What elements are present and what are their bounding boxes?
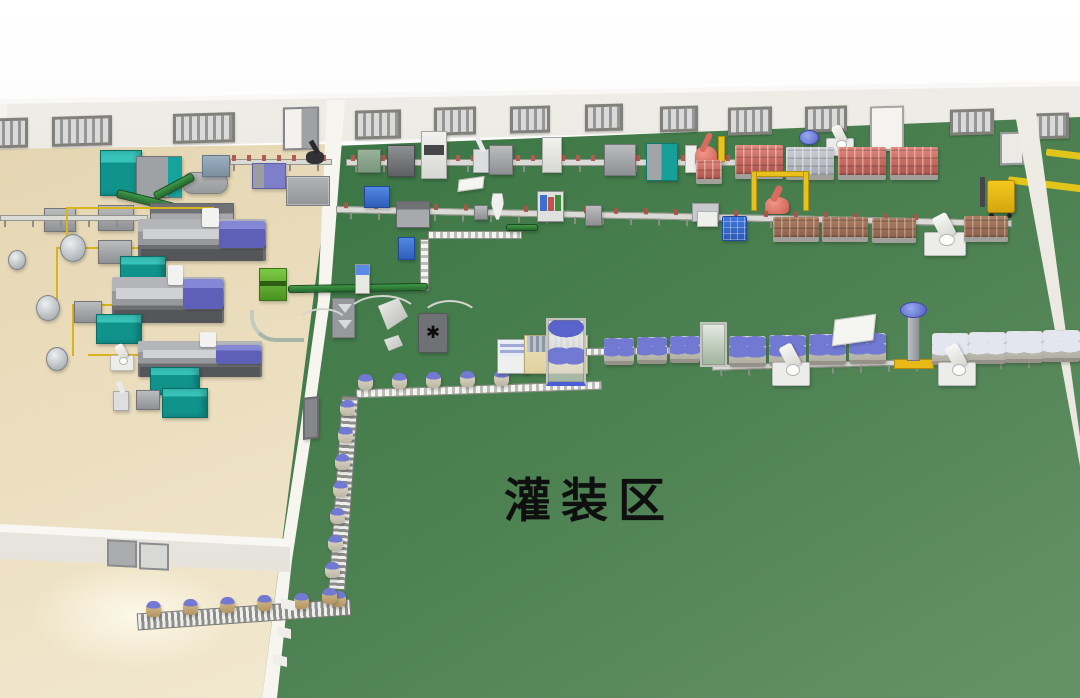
white-machine [697,211,718,227]
drum-pack [1043,330,1080,362]
drum-single [294,593,309,609]
conveyor-belt [0,215,148,221]
drum-pack [637,337,667,364]
drum-single [426,372,441,388]
tube-curve [250,310,304,342]
drum-pack [729,336,766,367]
drum-single [220,597,235,613]
white-robot-arm [938,362,976,386]
drum-single [146,601,161,617]
drum-single [392,373,407,389]
silver-tank [8,250,26,270]
drum-single [340,400,355,416]
column-machine [894,305,934,369]
packer-machine [537,191,564,222]
pipe-yellow [66,207,214,209]
wall-fin [273,654,287,667]
teal-cabinet [162,388,208,418]
blue-tower [355,264,370,294]
drum-single [333,481,348,497]
gray-machine [474,205,488,220]
white-cabinet [421,131,447,179]
yellow-post [718,136,725,162]
gray-machine [585,205,602,226]
drum-pack [604,338,634,365]
blue-machine [364,186,390,208]
imm [138,219,266,261]
pallet-cans [773,217,819,242]
roller-conveyor [137,599,352,631]
pallet-cans [964,216,1008,242]
gray-machine [489,145,513,175]
blue-drum-top [799,130,819,145]
drum-single [338,427,353,443]
silver-robot-sm [113,391,129,411]
white-cabinet [542,137,562,173]
dark-platform [418,313,448,353]
drum-single [183,599,198,615]
filling-area-label: 灌装区 [504,462,675,531]
blue-crates [722,216,747,241]
silver-tank [60,234,86,262]
drum-single [460,371,475,387]
pallet-cans [872,218,916,243]
white-robot-arm [110,355,134,371]
silver-tank [46,347,68,371]
drum-pack [969,332,1006,364]
green-conveyor [506,224,538,231]
white-robot-arm [772,362,810,386]
pipe-yellow [56,247,58,305]
pallet-cans [890,147,938,180]
blue-machine [398,237,415,260]
drum-single [335,454,350,470]
equipment-layer [0,0,1080,698]
teal-cabinet [96,314,142,344]
drum-single [330,508,345,524]
factory-3d-render: 灌装区 [0,0,1080,698]
wire-arc [345,295,420,340]
lime-machine [259,268,287,301]
pallet-cans [822,217,868,242]
drum-single [358,374,373,390]
steel-machine [202,155,230,177]
gray-long-machine [396,201,430,228]
drum-pack [1006,331,1043,363]
drum-single [257,595,272,611]
drum-pack [670,336,700,363]
frame-cabinet [700,322,727,367]
black-robot [302,140,328,164]
gray-machine [136,390,160,410]
wall-fin [277,626,291,639]
purple-machine-sm [252,163,286,189]
frame-cabinet [546,318,586,386]
red-robot [762,186,792,214]
drum-single [325,562,340,578]
gray-door [303,396,319,440]
pallet-cans [696,160,722,184]
gray-dark-machine [387,145,415,177]
white-robot-arm [924,232,966,256]
slat-conveyor [428,231,522,239]
forklift [976,176,1020,218]
green-machine-sm [357,149,381,173]
pallet-cans [838,147,886,180]
silver-robot-sm [473,149,489,173]
gray-cluster [286,176,330,206]
white-table [457,176,484,192]
teal-gray-machine [646,143,678,181]
silver-tank [36,295,60,321]
drum-single [328,535,343,551]
gray-machine [604,144,636,176]
drum-single [322,588,337,604]
